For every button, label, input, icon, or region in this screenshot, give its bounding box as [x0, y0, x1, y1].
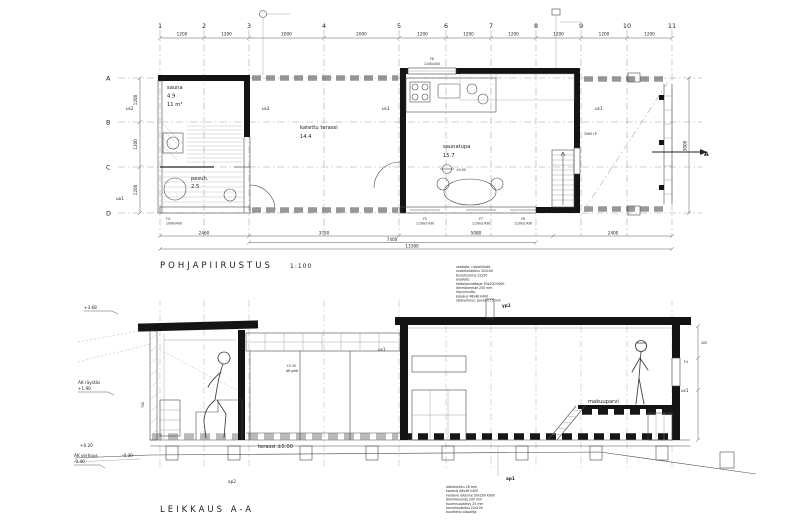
section-title-text: LEIKKAUS A-A [160, 505, 254, 515]
toilet [224, 189, 236, 201]
room-saunatupa-area: 15.7 [443, 153, 455, 159]
elev-190: +1.90 [78, 386, 91, 391]
saunatupa-wall-left [400, 68, 406, 213]
sauna-wall-bottom [160, 207, 250, 213]
room-terassi-area: 14.4 [300, 134, 312, 140]
floor-plan: 1 2 3 4 5 6 7 8 9 10 11 1200 1200 2000 2… [106, 9, 710, 271]
sink-bowl-1 [467, 84, 477, 94]
grid-col-9: 9 [579, 22, 583, 30]
room-saunatupa-name: saunatupa [443, 144, 470, 150]
grid-row-b: B [106, 119, 110, 127]
elev-m030: -0.30 [122, 453, 133, 458]
wall-tag-us2-left: us2 [126, 106, 134, 111]
room-sauna-area: 4.9 [167, 94, 175, 100]
grid-row-c: C [106, 164, 111, 172]
door-tag-uo1: uo1 [116, 196, 124, 201]
ap1-spec-block: ap1 lattialankku 28 mm koolaus 48x48 k40… [446, 446, 515, 514]
dim-col-5: 1200 [417, 32, 428, 37]
ap1-tag: ap1 [506, 476, 515, 481]
room-pesuhuone-name: pesuh. [191, 176, 209, 182]
room-pesuhuone-area: 2.5 [191, 184, 199, 190]
pesuhuone-fixtures [163, 172, 275, 210]
section-sauna-block: +0.30 AK pelti 700 [138, 320, 298, 440]
sauna-wall-top [158, 75, 250, 81]
window-f4-id: F4 [166, 217, 170, 221]
ak-pelti-level: +0.30 [286, 364, 296, 368]
foundation [150, 440, 734, 468]
flue-marker-left [260, 11, 291, 76]
plan-bottom-dims: 2460 3750 5080 2400 7400 13380 [158, 230, 674, 251]
room-saunatupa-level: ±0.00 [456, 168, 466, 172]
plan-grid-col-labels: 1 2 3 4 5 6 7 8 9 10 11 [158, 22, 676, 30]
sauna-roof [138, 320, 258, 331]
grid-col-4: 4 [322, 22, 326, 30]
dim-7400: 7400 [387, 237, 398, 242]
room-sauna-name: sauna [167, 85, 183, 91]
sauna-stove [163, 124, 183, 160]
dim-700: 700 [141, 402, 145, 408]
sink [438, 84, 460, 98]
sight-lines [78, 329, 240, 392]
section-main-block: makuuparvi us1 us1 F4 400 [378, 299, 707, 442]
ak-pelti-label: AK pelti [286, 369, 298, 373]
sauna-wall-right [244, 75, 250, 137]
dim-5080: 5080 [471, 230, 482, 235]
dim-row-1: 1200 [133, 94, 138, 105]
stool [437, 178, 449, 190]
dim-row-2: 1200 [133, 139, 138, 150]
dim-col-10: 1200 [644, 32, 655, 37]
grid-col-8: 8 [534, 22, 538, 30]
grid-col-6: 6 [444, 22, 448, 30]
saunatupa-wall-right [574, 68, 580, 213]
dim-2400: 2400 [608, 230, 619, 235]
room-terassi-name: katettu terassi [300, 125, 338, 131]
grid-col-5: 5 [397, 22, 401, 30]
dim-2460: 2460 [199, 230, 210, 235]
dim-col-9: 1200 [599, 32, 610, 37]
window-f7-size: 1130x1430 [472, 222, 490, 226]
dim-col-7: 1200 [508, 32, 519, 37]
wall-tag-us1-right: us1 [595, 106, 603, 111]
dining-table [437, 178, 503, 205]
section-mark-a: A [704, 151, 710, 158]
dim-3750: 3750 [319, 230, 330, 235]
loft-stair [552, 150, 574, 207]
saunatupa-wall-bottom-solid [536, 207, 580, 213]
main-wall-left-section [400, 325, 408, 440]
door-right [574, 148, 580, 174]
drawing-sheet: 1 2 3 4 5 6 7 8 9 10 11 1200 1200 2000 2… [0, 0, 811, 528]
window-f6-id: F6 [430, 57, 434, 61]
plan-row-labels: A B C D 1200 1200 1200 [106, 75, 142, 218]
ap1-line: tuuletettu alapohja [446, 510, 477, 514]
window-f5-size: 1130x1430 [416, 222, 434, 226]
ap2-tag: ap2 [228, 479, 236, 484]
window-f6-size: 1100x400 [424, 62, 440, 66]
door-swing-pesuhuone [250, 185, 275, 210]
grid-row-a: A [106, 75, 111, 83]
us1-tag-a: us1 [378, 347, 386, 352]
window-f7-id: F7 [479, 217, 483, 221]
elev-ak-verhous: AK verhous [74, 453, 98, 458]
plan-top-dim-chain: 1200 1200 2000 2000 1200 1200 1200 1200 … [158, 32, 674, 41]
dim-col-1: 1200 [177, 32, 188, 37]
sauna-stove-section [160, 400, 180, 436]
window-f4-section [672, 358, 680, 386]
dim-row-3: 1200 [133, 184, 138, 195]
plan-title-scale: 1:100 [290, 263, 312, 270]
dim-col-3: 2000 [281, 32, 292, 37]
dim-13380: 13380 [405, 243, 419, 248]
yp1-tag: yp1 [502, 303, 511, 308]
dim-col-6: 1200 [463, 32, 474, 37]
elev-m040: -0.40 [74, 459, 85, 464]
grid-col-2: 2 [202, 22, 206, 30]
yp1-spec-block: vesikate, rivipeltikate ruodelaudoitus 3… [456, 265, 511, 308]
seated-figure [204, 352, 230, 438]
us1-tag-b: us1 [681, 388, 689, 393]
grid-col-3: 3 [247, 22, 251, 30]
sauna-wall-left-section [150, 331, 157, 440]
sauna-benches [186, 126, 242, 162]
grid-row-d: D [106, 210, 111, 218]
window-f5-id: F5 [423, 217, 427, 221]
section-loft: makuuparvi [578, 341, 674, 441]
elev-020: +0.20 [80, 443, 93, 448]
main-roof [395, 317, 691, 325]
makuuparvi-label: makuuparvi [588, 399, 619, 405]
washbasin [164, 178, 186, 200]
stool [491, 178, 503, 190]
section-a-a: +0.30 AK pelti 700 terassi ±0.00 [74, 265, 756, 515]
window-f8-size: 1130x1430 [514, 222, 532, 226]
ground-line [75, 452, 756, 474]
plan-title: POHJAPIIRUSTUS 1:100 [160, 261, 312, 271]
dim-400: 400 [701, 341, 707, 345]
section-terrace: terassi ±0.00 [246, 333, 400, 450]
window-f4-size: 1090x400 [166, 222, 182, 226]
terrace-diagonal [584, 82, 668, 210]
plan-title-text: POHJAPIIRUSTUS [160, 261, 273, 271]
dim-col-4: 2000 [356, 32, 367, 37]
elev-ak-raystas: AK räystäs [78, 380, 100, 385]
wall-tag-us1-left: us1 [382, 106, 390, 111]
door-swing-saunatupa [374, 162, 400, 188]
flue-marker-right [552, 9, 582, 68]
section-kitchen [412, 356, 466, 440]
grid-col-1: 1 [158, 22, 162, 30]
standing-figure [632, 341, 648, 405]
open-terrace: 3060 LP [584, 73, 672, 215]
saunatupa-block: saunatupa 15.7 ±0.00 F6 1100x400 us1 us1… [382, 57, 603, 226]
terassi-level-label: terassi ±0.00 [258, 444, 293, 450]
sauna-wall-right-section [238, 330, 245, 440]
grid-col-11: 11 [668, 22, 676, 30]
yp1-line: sisäverhous, paneeli 15 mm [456, 299, 501, 303]
dim-right-3000: 3000 [683, 140, 688, 151]
drawing-canvas: 1 2 3 4 5 6 7 8 9 10 11 1200 1200 2000 2… [0, 0, 811, 528]
tag-3060-lp: 3060 LP [584, 132, 597, 136]
level-marker: ±0.00 [440, 165, 466, 174]
dim-col-8: 1200 [553, 32, 564, 37]
grid-col-10: 10 [623, 22, 631, 30]
covered-terrace: katettu terassi 14.4 [252, 78, 400, 210]
window-f8-id: F8 [521, 217, 525, 221]
room-sauna-volume: 11 m³ [167, 102, 182, 108]
sink-bowl-2 [478, 94, 488, 104]
section-elevations: +3.68 AK räystäs +1.90 +0.20 AK verhous … [74, 305, 133, 468]
wall-tag-us2-right: us2 [262, 106, 270, 111]
dim-col-2: 1200 [221, 32, 232, 37]
elev-368: +3.68 [84, 305, 97, 310]
grid-col-7: 7 [489, 22, 493, 30]
kitchen-counter [406, 74, 496, 112]
f4-tag-section: F4 [684, 360, 688, 364]
